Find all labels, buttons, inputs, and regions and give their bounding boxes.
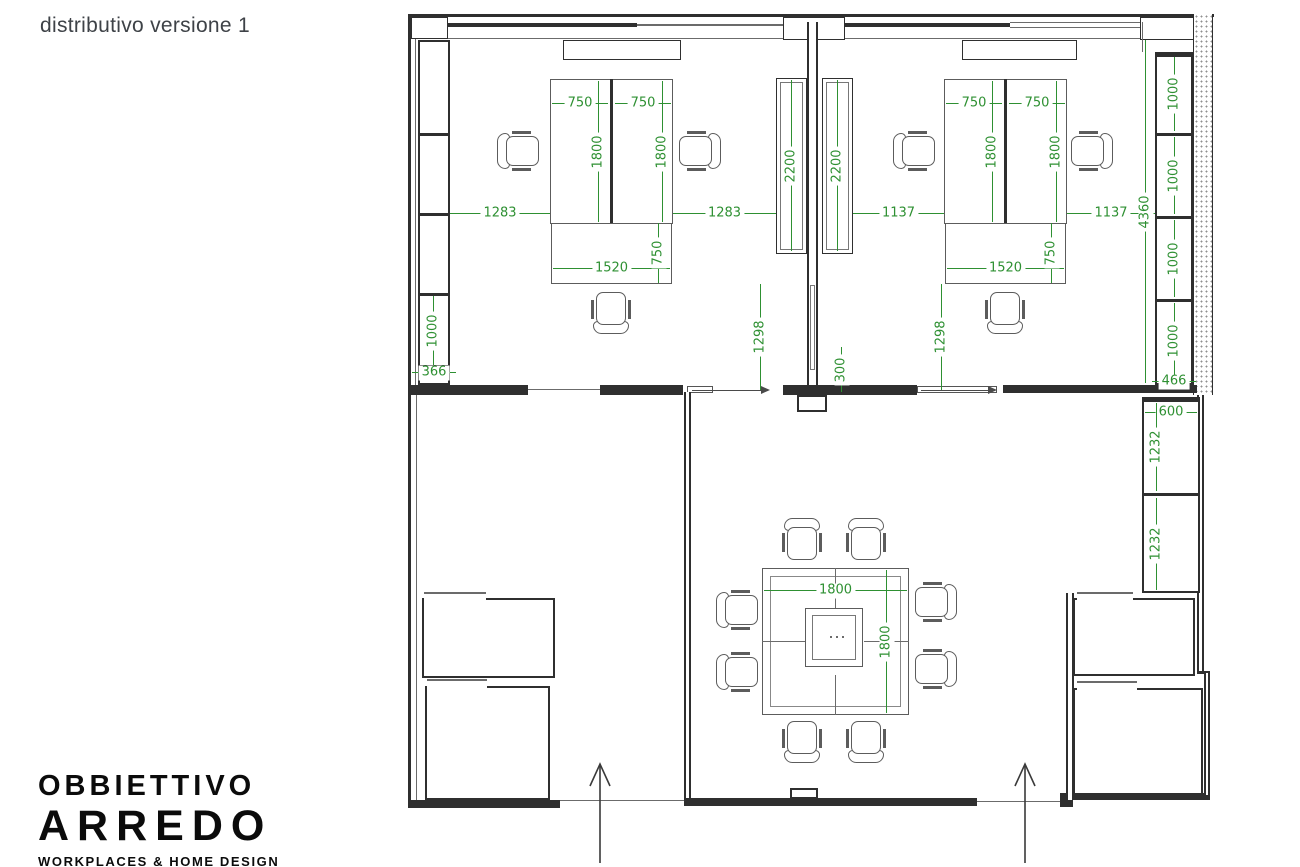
company-logo: OBBIETTIVO ARREDO WORKPLACES & HOME DESI… (38, 772, 279, 867)
chair-armrests (731, 652, 750, 692)
dimension: 1800 (662, 81, 663, 222)
sliding-door-arrow-icon (692, 390, 768, 391)
wall-segment (684, 798, 977, 806)
meeting-chair (913, 583, 957, 621)
table-seam (835, 675, 836, 715)
wall-line (415, 22, 416, 385)
chair-armrests (985, 300, 1025, 319)
meeting-chair (783, 719, 821, 763)
dimension: 750 (946, 103, 1002, 104)
dimension: 466 (1152, 381, 1196, 382)
table-seam (762, 641, 807, 642)
door-opening (1077, 686, 1137, 692)
window-glass (1010, 27, 1140, 28)
wall-segment (1204, 673, 1210, 795)
dimension: 2200 (791, 80, 792, 251)
chair-armrests (591, 300, 631, 319)
window-sill (448, 38, 783, 39)
meeting-chair (847, 719, 885, 763)
office-chair (893, 132, 937, 170)
cabinet-top (1142, 397, 1200, 402)
entrance-arrow-icon (587, 761, 613, 863)
module-dot (842, 636, 844, 638)
desk-divider (610, 79, 613, 224)
dimension: 1800 (598, 81, 599, 222)
logo-tagline: WORKPLACES & HOME DESIGN (38, 855, 279, 867)
closet-room (1073, 688, 1203, 795)
meeting-chair (847, 518, 885, 562)
dimension: 1800 (992, 81, 993, 222)
wall-segment (408, 14, 411, 808)
chair-armrests (512, 131, 531, 171)
dimension: 750 (552, 103, 608, 104)
wall-line (1142, 22, 1143, 52)
dimension: 366 (412, 372, 456, 373)
dimension: 4360 (1145, 40, 1146, 383)
meeting-chair (716, 591, 760, 629)
chair-armrests (731, 590, 750, 630)
window-glass (637, 24, 783, 26)
door-opening (1077, 596, 1133, 602)
door-opening (427, 684, 487, 690)
door-leaf (427, 679, 487, 681)
dimension: 1000 (1174, 303, 1175, 379)
sliding-door-arrow-icon (921, 390, 995, 391)
dimension: 1283 (450, 213, 550, 214)
dimension: 1000 (1174, 57, 1175, 131)
chair-armrests (923, 649, 942, 689)
meeting-room-wall (684, 392, 691, 805)
dimension: 1000 (1174, 220, 1175, 297)
office-chair (677, 132, 721, 170)
wall-line (416, 395, 417, 800)
entrance-arrow-icon (1012, 761, 1038, 863)
dimension: 1000 (433, 296, 434, 365)
radiator (962, 40, 1077, 60)
dimension: 1000 (1174, 137, 1175, 214)
chair-armrests (782, 729, 822, 748)
page-title: distributivo versione 1 (40, 14, 250, 38)
cabinet-shelf (1155, 299, 1193, 302)
desk-divider (1004, 79, 1007, 224)
wall-segment (783, 385, 917, 395)
door-leaf (1077, 592, 1133, 594)
closet-room (1073, 598, 1195, 676)
entrance-threshold (560, 800, 684, 801)
chair-armrests (846, 729, 886, 748)
office-chair (1069, 132, 1113, 170)
wall-corner (411, 17, 448, 39)
wall-segment (411, 385, 528, 395)
closet-room (422, 598, 555, 678)
module-dot (836, 636, 838, 638)
dimension: 1232 (1156, 498, 1157, 590)
door-leaf (1077, 681, 1137, 683)
chair-armrests (908, 131, 927, 171)
cabinet-shelf (1155, 216, 1193, 219)
cabinet-shelf (418, 213, 450, 216)
dimension: 1800 (1056, 81, 1057, 222)
dimension: 2200 (837, 80, 838, 251)
partition-pocket (810, 285, 815, 370)
wall-segment (408, 800, 560, 808)
cable-module-inner (812, 615, 856, 660)
chair-armrests (923, 582, 942, 622)
window-glass (845, 23, 1010, 27)
dimension: 1283 (673, 213, 776, 214)
wall-pillar (790, 788, 818, 799)
dimension: 750 (658, 223, 659, 283)
closet-room (425, 686, 550, 800)
cabinet-shelf (1155, 133, 1193, 136)
dimension: 600 (1145, 412, 1197, 413)
chair-armrests (846, 533, 886, 552)
window-glass (448, 23, 637, 27)
window-glass (1010, 22, 1140, 23)
floor-plan-canvas: distributivo versione 1 (0, 0, 1300, 867)
door-leaf (424, 592, 486, 594)
office-chair (986, 290, 1024, 334)
dimension: 300 (841, 347, 842, 392)
module-dot (830, 636, 832, 638)
dimension: 1298 (941, 284, 942, 390)
dimension: 1232 (1156, 403, 1157, 491)
dimension: 1137 (853, 213, 944, 214)
dimension: 1800 (886, 570, 887, 713)
meeting-chair (716, 653, 760, 691)
dimension: 1298 (760, 284, 761, 390)
hatched-wall (1193, 14, 1213, 395)
radiator (563, 40, 681, 60)
wall-segment (600, 385, 683, 395)
door-threshold (528, 389, 600, 390)
meeting-chair (913, 650, 957, 688)
chair-armrests (687, 131, 706, 171)
wall-corner (1140, 17, 1195, 40)
dimension: 750 (1051, 223, 1052, 283)
logo-line-1: OBBIETTIVO (38, 772, 279, 801)
cabinet-shelf (418, 293, 450, 296)
office-chair (497, 132, 541, 170)
door-opening (424, 596, 486, 602)
logo-line-2: ARREDO (38, 805, 279, 848)
cabinet-shelf (1142, 493, 1200, 496)
cabinet-shelf (418, 133, 450, 136)
chair-armrests (782, 533, 822, 552)
meeting-chair (783, 518, 821, 562)
office-chair (592, 290, 630, 334)
chair-armrests (1079, 131, 1098, 171)
wall-pillar (797, 395, 827, 412)
window-sill (845, 38, 1140, 39)
